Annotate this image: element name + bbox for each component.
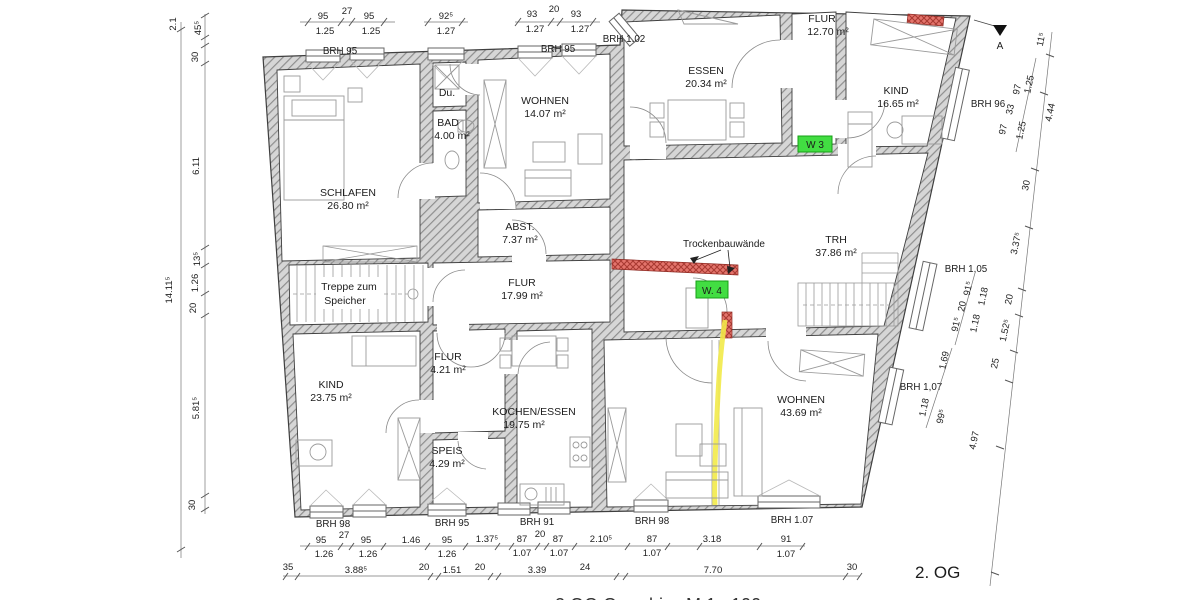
room-du <box>433 62 466 107</box>
room-area-kind2: 23.75 m² <box>310 392 352 404</box>
dim-b3-4: 20 <box>475 562 486 573</box>
dim-b2-5: 1.07 <box>643 548 662 559</box>
dim-b2-4: 1.07 <box>550 548 569 559</box>
brh-bottom-4: BRH 98 <box>635 516 670 527</box>
room-area-trh: 37.86 m² <box>815 247 857 259</box>
room-area-kind1: 16.65 m² <box>877 98 919 110</box>
dim-b2-3: 1.07 <box>513 548 532 559</box>
dim-b1-6: 87 <box>517 534 528 545</box>
dim-left-7: 5.81⁵ <box>191 397 202 419</box>
room-label-schlafen: SCHLAFEN <box>320 187 376 199</box>
room-label-wohnen2: WOHNEN <box>777 394 825 406</box>
marker-w4-label: W. 4 <box>702 286 722 297</box>
brh-right-1: BRH 96 <box>971 99 1006 110</box>
room-label-abst: ABST. <box>505 221 534 233</box>
dim-left-4: 13⁵ <box>192 252 203 267</box>
room-abst <box>478 207 610 257</box>
brh-bottom-1: BRH 98 <box>316 519 351 530</box>
room-area-schlafen: 26.80 m² <box>327 200 369 212</box>
dim-left-0: 2.1 <box>168 17 179 30</box>
dim-b3-8: 30 <box>847 562 858 573</box>
dim-top-1: 27 <box>342 6 353 17</box>
brh-top-3: BRH 1.02 <box>603 34 645 45</box>
room-area-flur3: 4.21 m² <box>430 364 466 376</box>
room-schlafen <box>277 64 420 261</box>
room-label-flur1: FLUR <box>808 13 836 25</box>
room-label-kind2: KIND <box>318 379 344 391</box>
brh-top-1: BRH 95 <box>323 46 358 57</box>
brh-bottom-3: BRH 91 <box>520 517 554 528</box>
section-arrow-icon <box>993 25 1007 36</box>
room-area-wohnen2: 43.69 m² <box>780 407 822 419</box>
dim-top-7: 93 <box>527 9 538 20</box>
dim-right-16: 25 <box>989 357 1002 370</box>
dim-left-1: 45⁵ <box>193 21 204 36</box>
dim-right-8: 3.37⁵ <box>1009 231 1024 255</box>
brh-bottom-2: BRH 95 <box>435 518 470 529</box>
dim-top-0: 95 <box>318 11 329 22</box>
room-label-flur3: FLUR <box>434 351 462 363</box>
dim-right-5: 1.25 <box>1014 120 1029 140</box>
dim-b1-5: 1.37⁵ <box>476 534 498 545</box>
room-area-flur2: 17.99 m² <box>501 290 543 302</box>
brh-right-2: BRH 1,05 <box>945 264 988 275</box>
dim-right-14: 20 <box>1003 293 1016 306</box>
room-label-du: Du. <box>439 87 455 99</box>
dim-right-20: 4.97 <box>967 430 982 450</box>
dim-left-3: 6.11 <box>191 157 202 175</box>
treppe-label-line1: Treppe zum <box>321 281 377 293</box>
dim-b2-1: 1.26 <box>359 549 378 560</box>
floor-title: 2. OG <box>915 563 960 582</box>
drawing-caption-partial: 2.OG Grundriss M 1 : 100 <box>555 595 761 600</box>
dim-top-6: 1.27 <box>437 26 456 37</box>
room-area-wohnen1: 14.07 m² <box>524 108 566 120</box>
room-area-abst: 7.37 m² <box>502 234 538 246</box>
dim-left-8: 30 <box>187 500 198 511</box>
dim-top-4: 1.25 <box>362 26 381 37</box>
dim-right-4: 1.25 <box>1022 74 1037 94</box>
dim-top-5: 92⁵ <box>439 11 454 22</box>
treppe-label-line2: Speicher <box>324 295 366 307</box>
dim-b3-2: 20 <box>419 562 430 573</box>
marker-w3-label: W 3 <box>806 140 824 151</box>
dim-top-11: 1.27 <box>571 24 590 35</box>
dim-top-3: 1.25 <box>316 26 335 37</box>
dim-b1-1: 27 <box>339 530 350 541</box>
dim-left-2: 30 <box>190 52 201 63</box>
dim-right-12: 1.18 <box>976 286 991 306</box>
dim-right-0: 11⁵ <box>1035 32 1049 48</box>
dim-right-19: 99⁵ <box>935 408 949 425</box>
room-area-flur1: 12.70 m² <box>807 26 849 38</box>
dim-b3-1: 3.88⁵ <box>345 565 367 576</box>
dim-b1-7: 20 <box>535 529 546 540</box>
room-label-kind1: KIND <box>883 85 909 97</box>
dim-b2-0: 1.26 <box>315 549 334 560</box>
room-wohnen1 <box>478 54 610 203</box>
room-area-kochen: 19.75 m² <box>503 419 545 431</box>
dim-b3-6: 24 <box>580 562 591 573</box>
dim-right-10: 20 <box>956 300 969 313</box>
dim-right-13: 1.18 <box>968 313 983 333</box>
dim-b2-6: 1.07 <box>777 549 796 560</box>
dim-b1-12: 91 <box>781 534 792 545</box>
room-area-speis: 4.29 m² <box>429 458 465 470</box>
dim-left-5: 1.26 <box>190 274 201 293</box>
dim-b3-0: 35 <box>283 562 294 573</box>
room-label-speis: SPEIS <box>432 445 463 457</box>
section-label: A <box>997 41 1004 52</box>
dim-left-9: 14.11⁵ <box>164 276 175 303</box>
dim-b3-3: 1.51 <box>443 565 462 576</box>
dim-top-2: 95 <box>364 11 375 22</box>
floor-plan-drawing: SCHLAFEN 26.80 m² Du. BAD 4.00 m² WOHNEN… <box>0 0 1200 600</box>
dim-right-15: 1.52⁵ <box>998 318 1013 342</box>
room-wohnen2 <box>604 334 878 507</box>
room-label-trh: TRH <box>825 234 847 246</box>
dim-b1-10: 87 <box>647 534 658 545</box>
dim-top-10: 1.27 <box>526 24 545 35</box>
room-area-bad: 4.00 m² <box>434 130 470 142</box>
dim-b1-4: 95 <box>442 535 453 546</box>
dim-right-18: 1.18 <box>917 397 932 417</box>
room-label-essen: ESSEN <box>688 65 724 77</box>
brh-right-3: BRH 1,07 <box>900 382 942 393</box>
dim-b1-3: 1.46 <box>402 535 421 546</box>
dim-right-2: 33 <box>1004 103 1017 116</box>
dim-b1-0: 95 <box>316 535 327 546</box>
dim-right-11: 91⁵ <box>950 316 964 333</box>
room-label-flur2: FLUR <box>508 277 536 289</box>
dim-right-9: 91⁵ <box>962 280 976 297</box>
trockenbau-label: Trockenbauwände <box>683 239 765 250</box>
dim-top-9: 93 <box>571 9 582 20</box>
room-label-bad: BAD <box>437 117 459 129</box>
brh-bottom-5: BRH 1.07 <box>771 515 813 526</box>
room-label-wohnen1: WOHNEN <box>521 95 569 107</box>
dim-right-6: 4.44 <box>1043 102 1058 122</box>
dim-left-6: 20 <box>188 303 199 314</box>
room-label-kochen: KOCHEN/ESSEN <box>492 406 575 418</box>
dim-b1-2: 95 <box>361 535 372 546</box>
dim-b2-2: 1.26 <box>438 549 457 560</box>
dim-top-8: 20 <box>549 4 560 15</box>
dim-right-3: 97 <box>997 123 1010 136</box>
dim-b3-7: 7.70 <box>704 565 723 576</box>
dim-b1-8: 87 <box>553 534 564 545</box>
dim-b3-5: 3.39 <box>528 565 547 576</box>
floor-plan-viewport: SCHLAFEN 26.80 m² Du. BAD 4.00 m² WOHNEN… <box>0 0 1200 600</box>
dim-right-17: 1.69 <box>937 350 952 370</box>
brh-top-2: BRH 95 <box>541 44 576 55</box>
dim-b1-9: 2.10⁵ <box>590 534 612 545</box>
room-kind2 <box>293 331 420 510</box>
dim-b1-11: 3.18 <box>703 534 722 545</box>
dim-right-7: 30 <box>1020 179 1033 192</box>
room-area-essen: 20.34 m² <box>685 78 727 90</box>
